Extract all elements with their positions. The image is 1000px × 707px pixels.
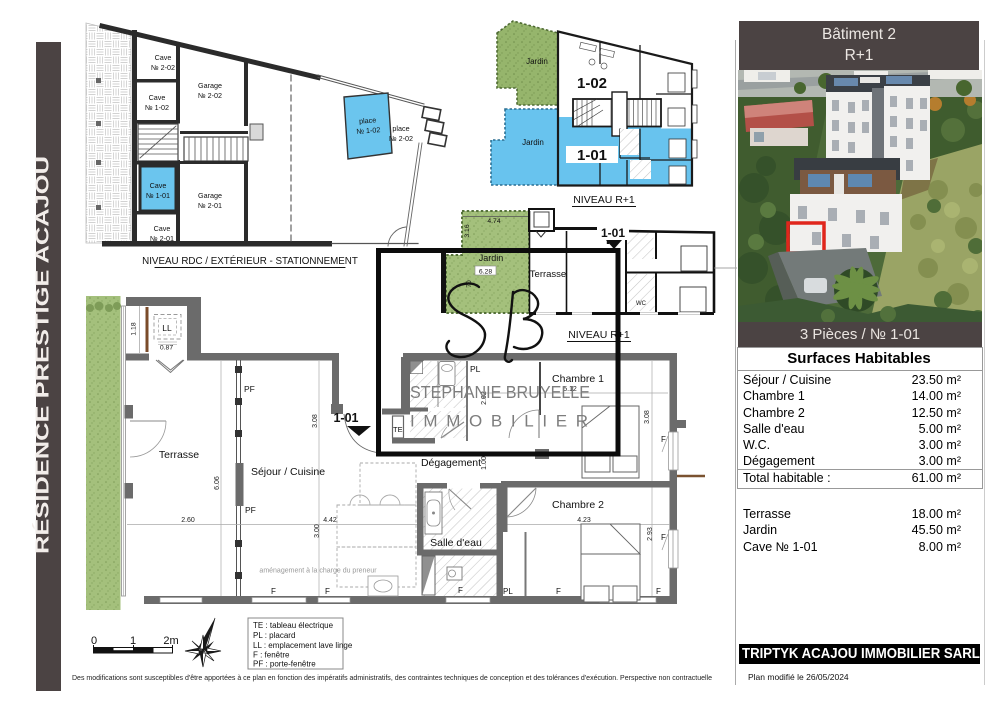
svg-text:F: F <box>556 587 561 596</box>
svg-text:NIVEAU RDC / EXTÉRIEUR - STATI: NIVEAU RDC / EXTÉRIEUR - STATIONNEMENT <box>142 256 358 267</box>
svg-text:place: place <box>359 115 377 125</box>
svg-text:1.18: 1.18 <box>131 322 138 335</box>
svg-text:Terrasse: Terrasse <box>159 449 199 461</box>
svg-text:1-02: 1-02 <box>577 75 607 92</box>
svg-text:STEPHANIE BRUYELLE: STEPHANIE BRUYELLE <box>410 382 590 402</box>
svg-text:PL : placard: PL : placard <box>253 631 295 640</box>
svg-text:№ 2-01: № 2-01 <box>150 234 174 243</box>
svg-text:Des modifications sont suscept: Des modifications sont susceptibles d'êt… <box>72 673 712 682</box>
svg-text:№ 2-01: № 2-01 <box>198 201 222 210</box>
svg-text:Cave: Cave <box>154 224 171 233</box>
svg-text:NIVEAU R+1: NIVEAU R+1 <box>573 194 635 206</box>
svg-text:TE : tableau électrique: TE : tableau électrique <box>253 621 334 630</box>
svg-text:LL : emplacement lave linge: LL : emplacement lave linge <box>253 641 353 650</box>
svg-text:2.60: 2.60 <box>181 517 195 524</box>
svg-text:1-01: 1-01 <box>333 411 358 425</box>
svg-text:aménagement à la charge du pre: aménagement à la charge du preneur <box>259 568 377 575</box>
svg-text:6.06: 6.06 <box>214 476 221 490</box>
svg-text:TE: TE <box>393 425 403 434</box>
svg-text:Jardin: Jardin <box>479 253 504 263</box>
svg-text:F: F <box>458 586 463 595</box>
svg-text:WC: WC <box>636 301 647 307</box>
svg-text:4.74: 4.74 <box>487 218 500 225</box>
svg-text:NIVEAU R+1: NIVEAU R+1 <box>568 329 630 341</box>
svg-text:2.93: 2.93 <box>647 527 654 541</box>
svg-text:№ 1-02: № 1-02 <box>356 125 381 136</box>
svg-text:1-01: 1-01 <box>577 147 607 164</box>
svg-text:№ 2-02: № 2-02 <box>151 63 175 72</box>
svg-text:Jardin: Jardin <box>522 138 544 147</box>
svg-text:Cave: Cave <box>150 181 167 190</box>
svg-text:3.00: 3.00 <box>314 524 321 538</box>
svg-text:Cave: Cave <box>155 53 172 62</box>
svg-text:Séjour / Cuisine: Séjour / Cuisine <box>251 466 325 478</box>
svg-text:PL: PL <box>470 364 481 374</box>
svg-text:3.08: 3.08 <box>644 410 651 424</box>
svg-text:place: place <box>392 124 409 133</box>
svg-text:F: F <box>656 587 661 596</box>
svg-text:PF: PF <box>245 505 256 515</box>
svg-text:4.42: 4.42 <box>323 517 337 524</box>
svg-text:PL: PL <box>503 587 513 596</box>
svg-text:1-01: 1-01 <box>601 226 625 240</box>
svg-text:6.28: 6.28 <box>479 269 492 276</box>
svg-text:Jardin: Jardin <box>526 57 548 66</box>
svg-text:4.23: 4.23 <box>577 517 591 524</box>
svg-text:№ 2-02: № 2-02 <box>389 134 413 143</box>
svg-text:№ 1-02: № 1-02 <box>145 103 169 112</box>
svg-text:LL: LL <box>162 323 172 333</box>
svg-text:0.87: 0.87 <box>160 345 173 352</box>
svg-text:F: F <box>325 587 330 596</box>
svg-text:3.16: 3.16 <box>464 224 471 237</box>
svg-text:F : fenêtre: F : fenêtre <box>253 651 290 660</box>
svg-text:IMMOBILIER: IMMOBILIER <box>410 412 588 431</box>
svg-text:Cave: Cave <box>149 93 166 102</box>
svg-text:1.00: 1.00 <box>481 456 488 470</box>
svg-text:№ 2-02: № 2-02 <box>198 91 222 100</box>
svg-text:Garage: Garage <box>198 191 222 200</box>
svg-text:Salle d'eau: Salle d'eau <box>430 537 482 549</box>
svg-text:3.08: 3.08 <box>312 414 319 428</box>
svg-text:2m: 2m <box>163 635 178 647</box>
svg-text:Garage: Garage <box>198 81 222 90</box>
svg-text:PF: PF <box>244 384 255 394</box>
svg-text:№ 1-01: № 1-01 <box>146 191 170 200</box>
svg-text:Dégagement: Dégagement <box>421 457 481 469</box>
svg-text:PF : porte-fenêtre: PF : porte-fenêtre <box>253 660 316 669</box>
svg-text:Terrasse: Terrasse <box>530 269 566 280</box>
svg-text:Chambre 2: Chambre 2 <box>552 499 604 511</box>
svg-text:RÉSIDENCE PRESTIGE ACAJOU: RÉSIDENCE PRESTIGE ACAJOU <box>32 156 53 554</box>
svg-text:F: F <box>271 587 276 596</box>
